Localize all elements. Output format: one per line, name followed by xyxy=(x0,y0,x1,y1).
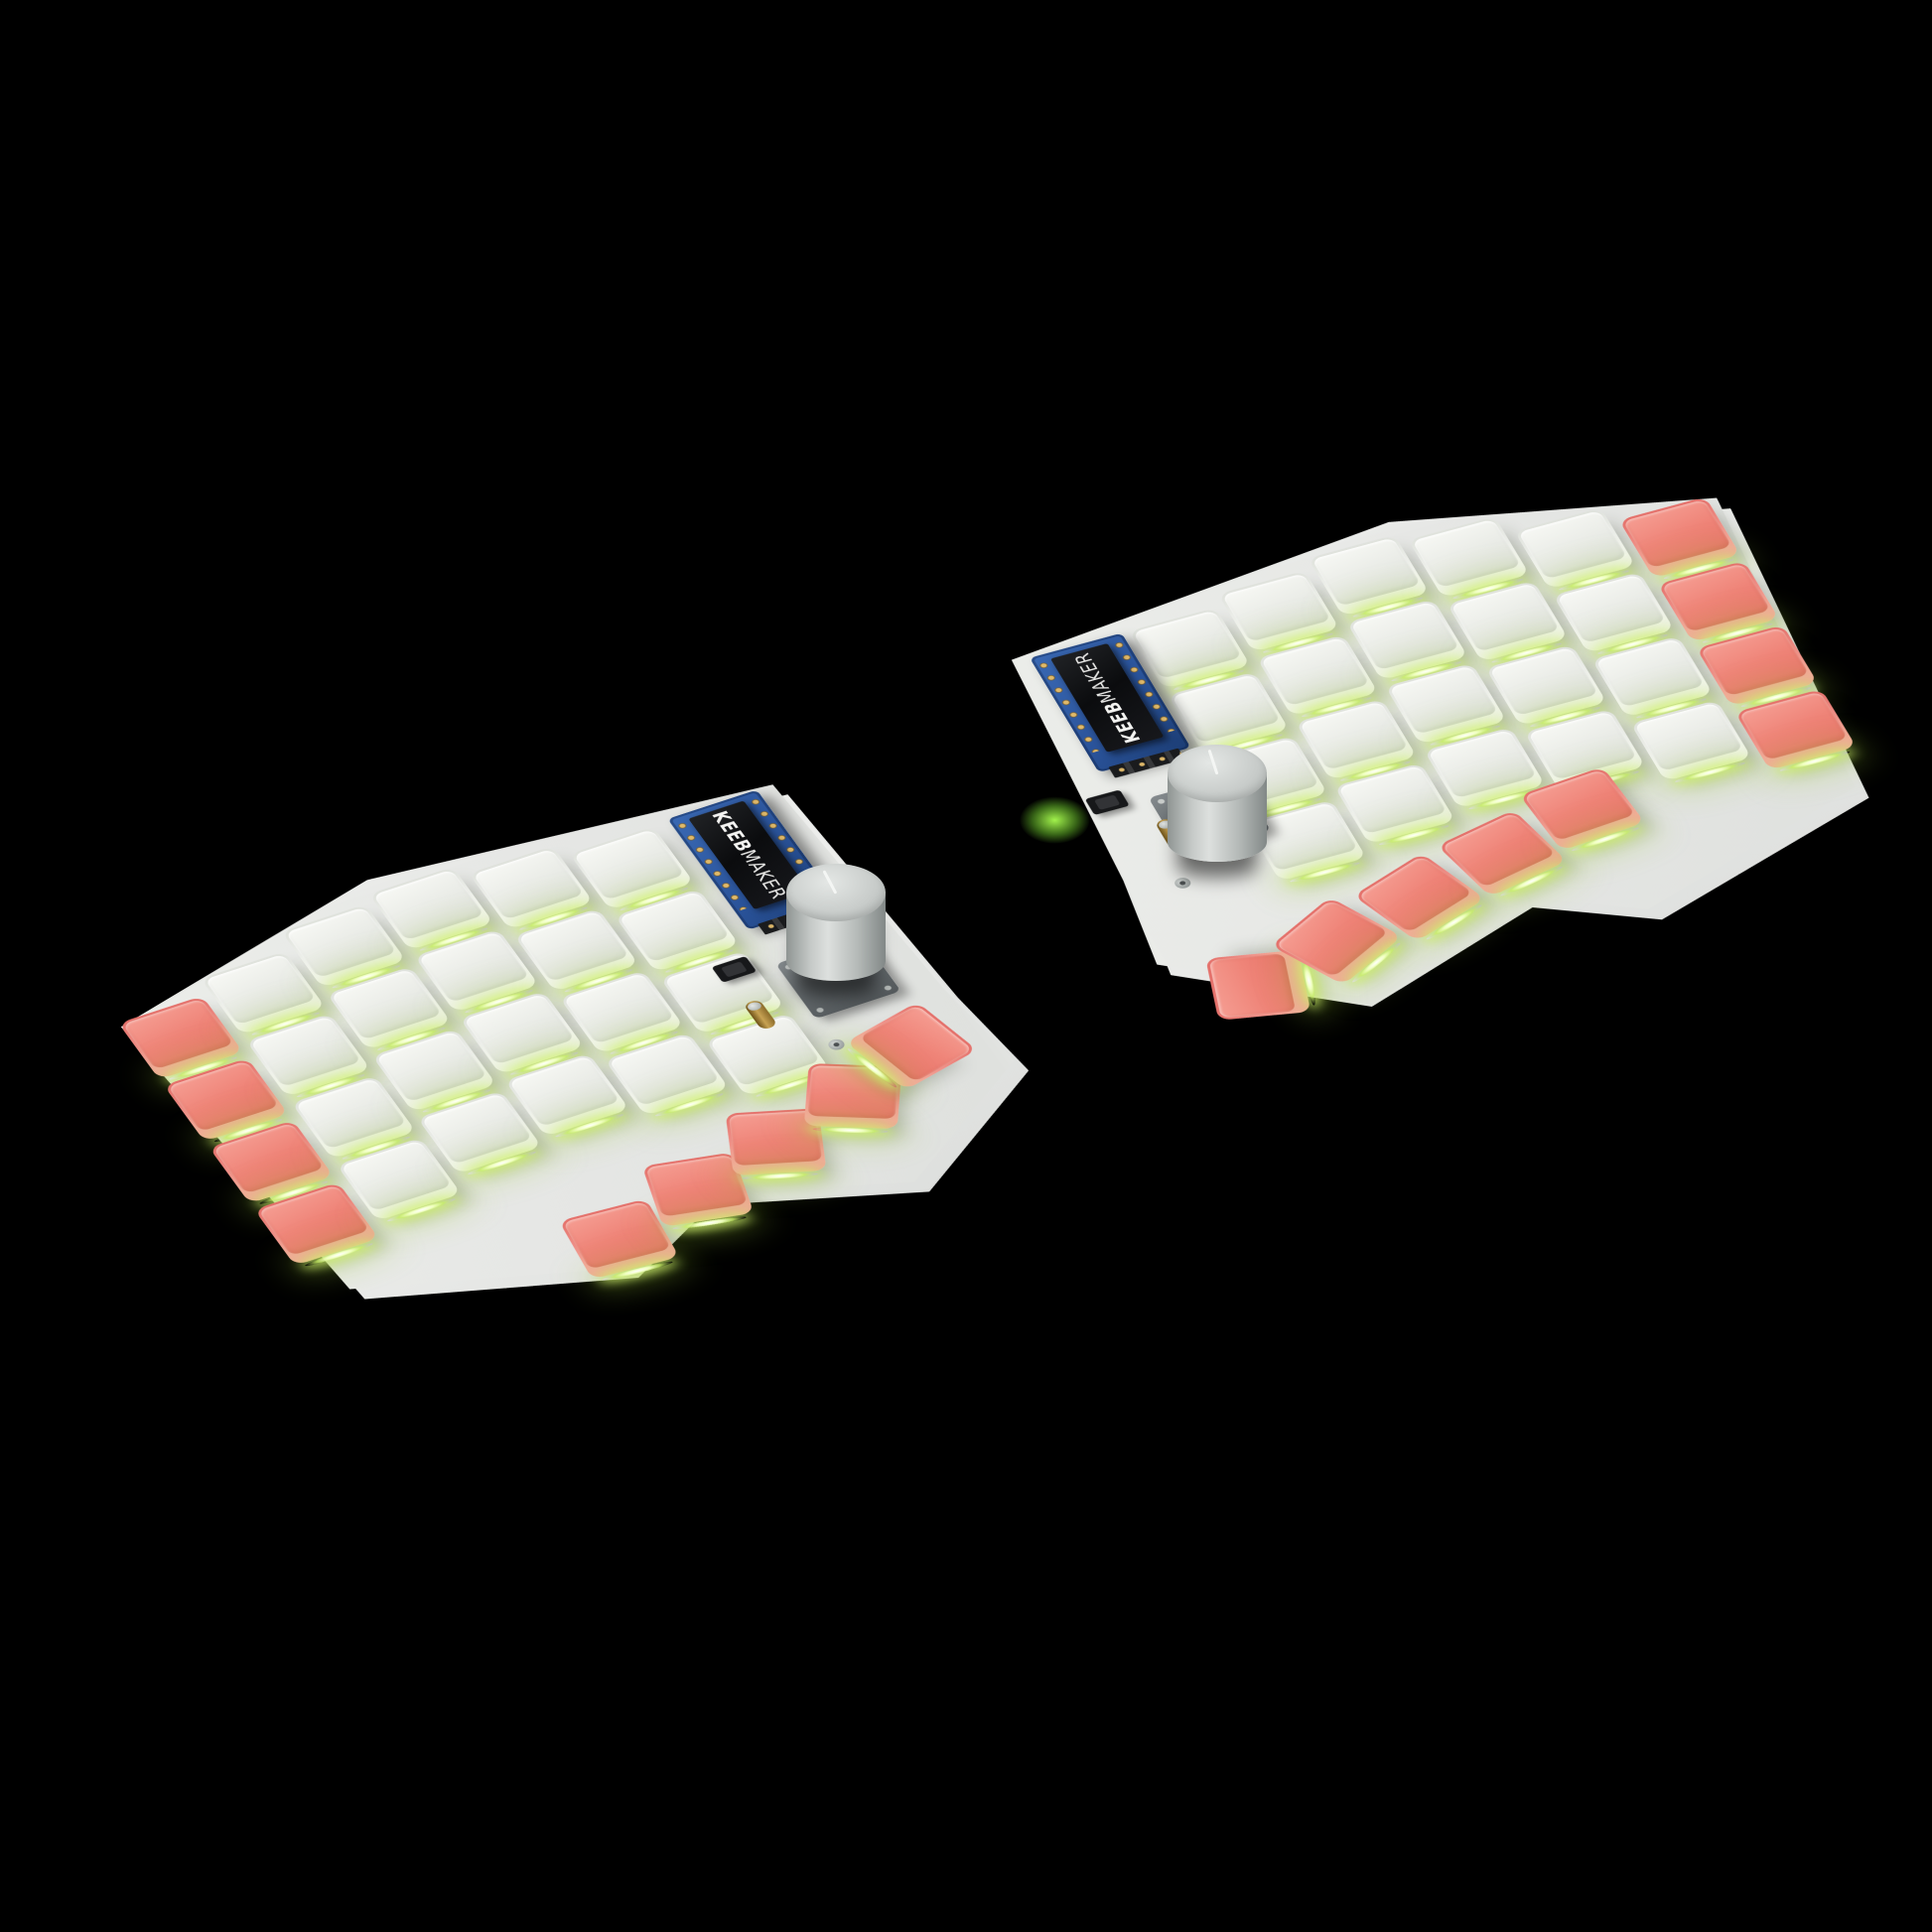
encoder-indicator-mark xyxy=(1208,750,1219,775)
keyboard-render-scene: KEEBMAKER KEEBMAKER xyxy=(0,0,1932,1932)
keyboard-right-half: KEEBMAKER xyxy=(943,431,1932,1066)
oled-brand-regular: MAKER xyxy=(1069,650,1121,705)
encoder-knob-top xyxy=(786,864,886,921)
encoder-indicator-mark xyxy=(822,870,837,894)
rotary-encoder-left-knob xyxy=(776,856,896,1005)
keycap-thumb-accent xyxy=(1205,950,1311,1021)
rotary-encoder-right-knob xyxy=(1158,737,1277,886)
keyboard-left-half: KEEBMAKER xyxy=(60,734,1096,1391)
encoder-knob-top xyxy=(1168,745,1267,802)
oled-brand-bold: KEEB xyxy=(707,808,757,854)
oled-brand-bold: KEEB xyxy=(1099,699,1146,745)
